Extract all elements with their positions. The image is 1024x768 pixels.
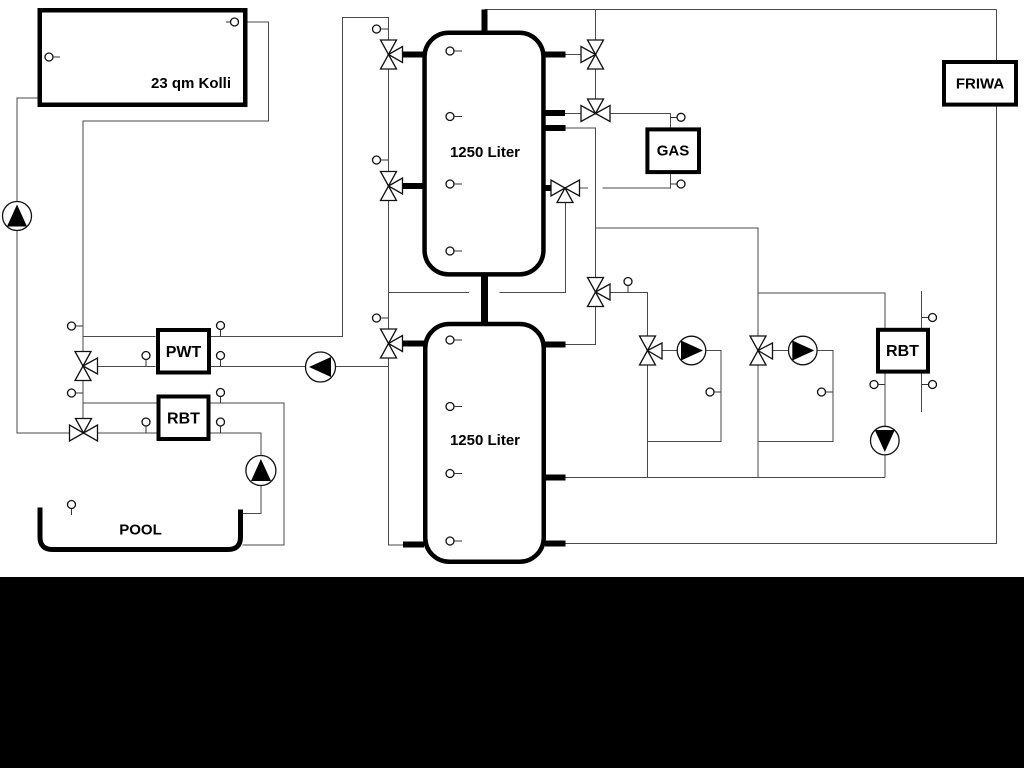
- svg-text:GAS: GAS: [657, 143, 690, 160]
- svg-text:23 qm Kolli: 23 qm Kolli: [151, 75, 231, 92]
- svg-text:POOL: POOL: [119, 522, 162, 539]
- svg-text:PWT: PWT: [166, 344, 202, 361]
- svg-text:FRIWA: FRIWA: [956, 76, 1004, 93]
- svg-text:1250 Liter: 1250 Liter: [450, 432, 520, 449]
- svg-text:RBT: RBT: [167, 411, 200, 428]
- svg-text:RBT: RBT: [886, 343, 919, 360]
- svg-text:1250 Liter: 1250 Liter: [450, 144, 520, 161]
